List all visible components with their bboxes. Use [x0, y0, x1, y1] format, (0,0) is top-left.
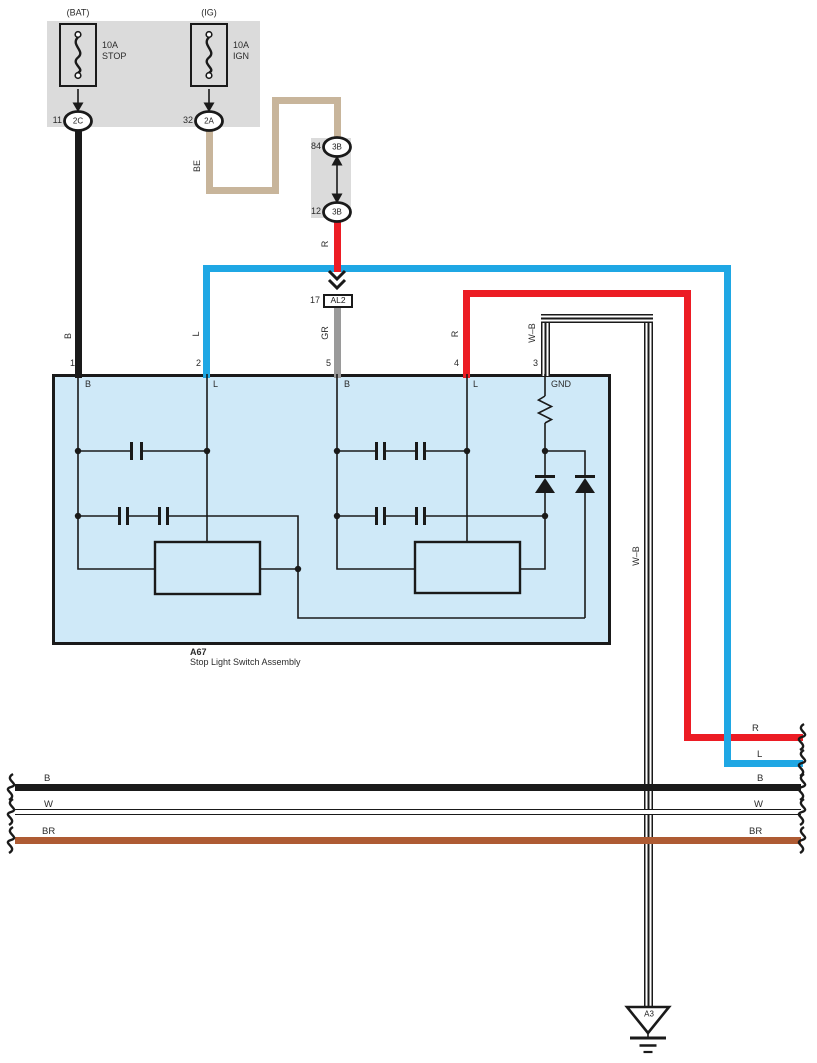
wire-label-r-right: R — [450, 331, 460, 338]
a67-pin-1-label: B — [85, 379, 91, 390]
capacitor-icon — [132, 442, 142, 460]
connector-2c-label: 2C — [73, 117, 83, 126]
wiring-diagram-page: AL2 — [0, 0, 817, 1063]
bus-label-left-b: B — [44, 773, 50, 784]
a67-pin-5-label: B — [344, 379, 350, 390]
fuse-bat-rating: 10A STOP — [102, 40, 126, 61]
bus-label-left-br: BR — [42, 826, 55, 837]
fuse-bat-title: (BAT) — [67, 8, 90, 19]
bus-label-right-w: W — [754, 799, 763, 810]
fuse-ig-rating: 10A IGN — [233, 40, 249, 61]
connector-2a-label: 2A — [204, 117, 214, 126]
pin-number-84: 84 — [299, 141, 321, 152]
a67-pin-3: 3 — [516, 358, 538, 369]
internal-block-right — [415, 542, 520, 593]
diode-icon — [535, 478, 555, 493]
connector-3b-top-label: 3B — [332, 143, 342, 152]
bus-label-right-l: L — [757, 749, 762, 760]
pin-number-32: 32 — [171, 115, 193, 126]
pin-number-17: 17 — [298, 295, 320, 306]
connector-3b-bottom-label: 3B — [332, 208, 342, 217]
bus-label-right-b: B — [757, 773, 763, 784]
assembly-name: Stop Light Switch Assembly — [190, 657, 301, 668]
wire-label-gr: GR — [320, 326, 330, 340]
ground-label: A3 — [644, 1010, 654, 1019]
resistor-icon — [539, 396, 552, 423]
wire-label-wb-top: W–B — [527, 323, 537, 343]
a67-internal-circuit — [75, 374, 595, 618]
a67-pin-1: 1 — [53, 358, 75, 369]
bus-label-right-r: R — [752, 723, 759, 734]
internal-block-left — [155, 542, 260, 594]
bus-label-left-w: W — [44, 799, 53, 810]
fuse-bat-symbol-icon — [76, 37, 81, 72]
pin-number-12: 12 — [299, 206, 321, 217]
junction-dots — [75, 448, 548, 572]
pin-number-11: 11 — [40, 115, 62, 126]
fuse-ig-title: (IG) — [201, 8, 217, 19]
a67-pin-2: 2 — [179, 358, 201, 369]
diode-icon — [575, 478, 595, 493]
wire-label-be: BE — [192, 160, 202, 172]
wire-label-r-top: R — [320, 241, 330, 248]
a67-pin-4-label: L — [473, 379, 478, 390]
fuse-ig-symbol-icon — [207, 37, 212, 72]
a67-pin-3-label: GND — [551, 379, 571, 390]
bus-label-right-br: BR — [749, 826, 762, 837]
assembly-code: A67 — [190, 647, 207, 658]
wire-break-icon — [8, 724, 805, 853]
wire-label-wb-down: W–B — [631, 546, 641, 566]
chevron-arrow-icon — [329, 271, 345, 279]
wire-label-b: B — [63, 333, 73, 339]
a67-pin-4: 4 — [437, 358, 459, 369]
a67-pin-5: 5 — [309, 358, 331, 369]
circuit-linework — [0, 0, 817, 1063]
wire-label-l: L — [191, 331, 201, 336]
a67-pin-2-label: L — [213, 379, 218, 390]
